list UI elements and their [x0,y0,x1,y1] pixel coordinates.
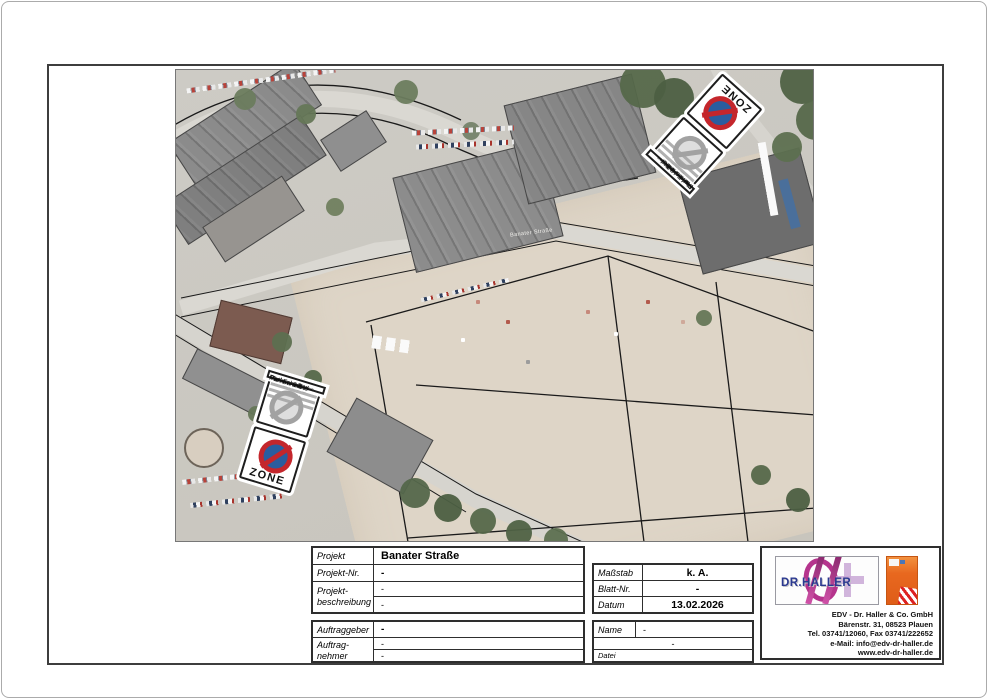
address-line: e-Mail: info@edv-dr-haller.de [766,639,933,649]
projekt-nr-label: Projekt-Nr. [313,565,374,582]
trees [296,104,316,124]
titleblock-client-table: Auftraggeber - Auftrag- nehmer - - [311,620,585,663]
datum-label: Datum [594,597,643,612]
name-value: - [636,622,752,638]
trees [506,520,532,541]
cad-line [716,282,748,541]
auftraggeber-label: Auftraggeber [313,622,374,638]
projekt-value: Banater Straße [374,548,583,565]
debris [461,338,465,342]
cad-line [416,385,813,415]
map-round-building [184,428,224,468]
datei-label: Datei [594,650,752,661]
company-logo: DR.HALLER [775,556,879,605]
debris [646,300,650,304]
brochure-detail [889,559,899,566]
trees [234,88,256,110]
auftragnehmer-value-2: - [374,650,583,661]
company-info-box: DR.HALLER EDV - Dr. Haller & Co. GmbH Bä… [760,546,941,660]
debris [506,320,510,324]
beschreibung-label-line1: Projekt- [313,582,373,597]
debris [476,300,480,304]
trees [394,80,418,104]
address-line: Bärenstr. 31, 08523 Plauen [766,620,933,630]
company-address: EDV - Dr. Haller & Co. GmbH Bärenstr. 31… [766,610,933,658]
debris [681,320,685,324]
address-line: EDV - Dr. Haller & Co. GmbH [766,610,933,620]
auftragnehmer-label-line2: nehmer [313,651,373,661]
debris [614,332,618,336]
skylight [778,178,801,229]
auftragnehmer-label-line1: Auftrag- [313,638,373,651]
auftraggeber-value: - [374,622,583,638]
titleblock-file-table: Name - - Datei [592,620,754,663]
titleblock-project-table: Projekt Banater Straße Projekt-Nr. - Pro… [311,546,585,614]
blatt-nr-label: Blatt-Nr. [594,581,643,597]
file-mid-value: - [594,638,752,650]
trees [772,132,802,162]
brochure-detail [900,560,905,564]
address-line: Tel. 03741/12060, Fax 03741/222652 [766,629,933,639]
brochure-detail [898,587,918,605]
trees [272,332,292,352]
titleblock-meta-table: Maßstab k. A. Blatt-Nr. - Datum 13.02.20… [592,563,754,614]
logo-text: DR.HALLER [781,577,851,589]
cad-line [608,256,644,541]
beschreibung-value-2: - [374,597,583,612]
trees [696,310,712,326]
trees [326,198,344,216]
brochure-thumbnail [886,556,918,605]
datum-value: 13.02.2026 [643,597,752,612]
trees [434,494,462,522]
debris [586,310,590,314]
trees [786,488,810,512]
auftragnehmer-label: Auftrag- nehmer [313,638,374,661]
debris [526,360,530,364]
trees [470,508,496,534]
projekt-label: Projekt [313,548,374,565]
aerial-map: Banater Straße ZONE ZONE Parken mit Park… [176,70,813,541]
projekt-nr-value: - [374,565,583,582]
auftragnehmer-value-1: - [374,638,583,650]
beschreibung-label-line2: beschreibung [313,597,373,608]
trees [400,478,430,508]
massstab-label: Maßstab [594,565,643,581]
beschreibung-value-1: - [374,582,583,597]
cad-line [408,508,813,538]
address-line: www.edv-dr-haller.de [766,648,933,658]
trees [751,465,771,485]
beschreibung-label: Projekt- beschreibung [313,582,374,612]
blatt-nr-value: - [643,581,752,597]
name-label: Name [594,622,636,638]
massstab-value: k. A. [643,565,752,581]
